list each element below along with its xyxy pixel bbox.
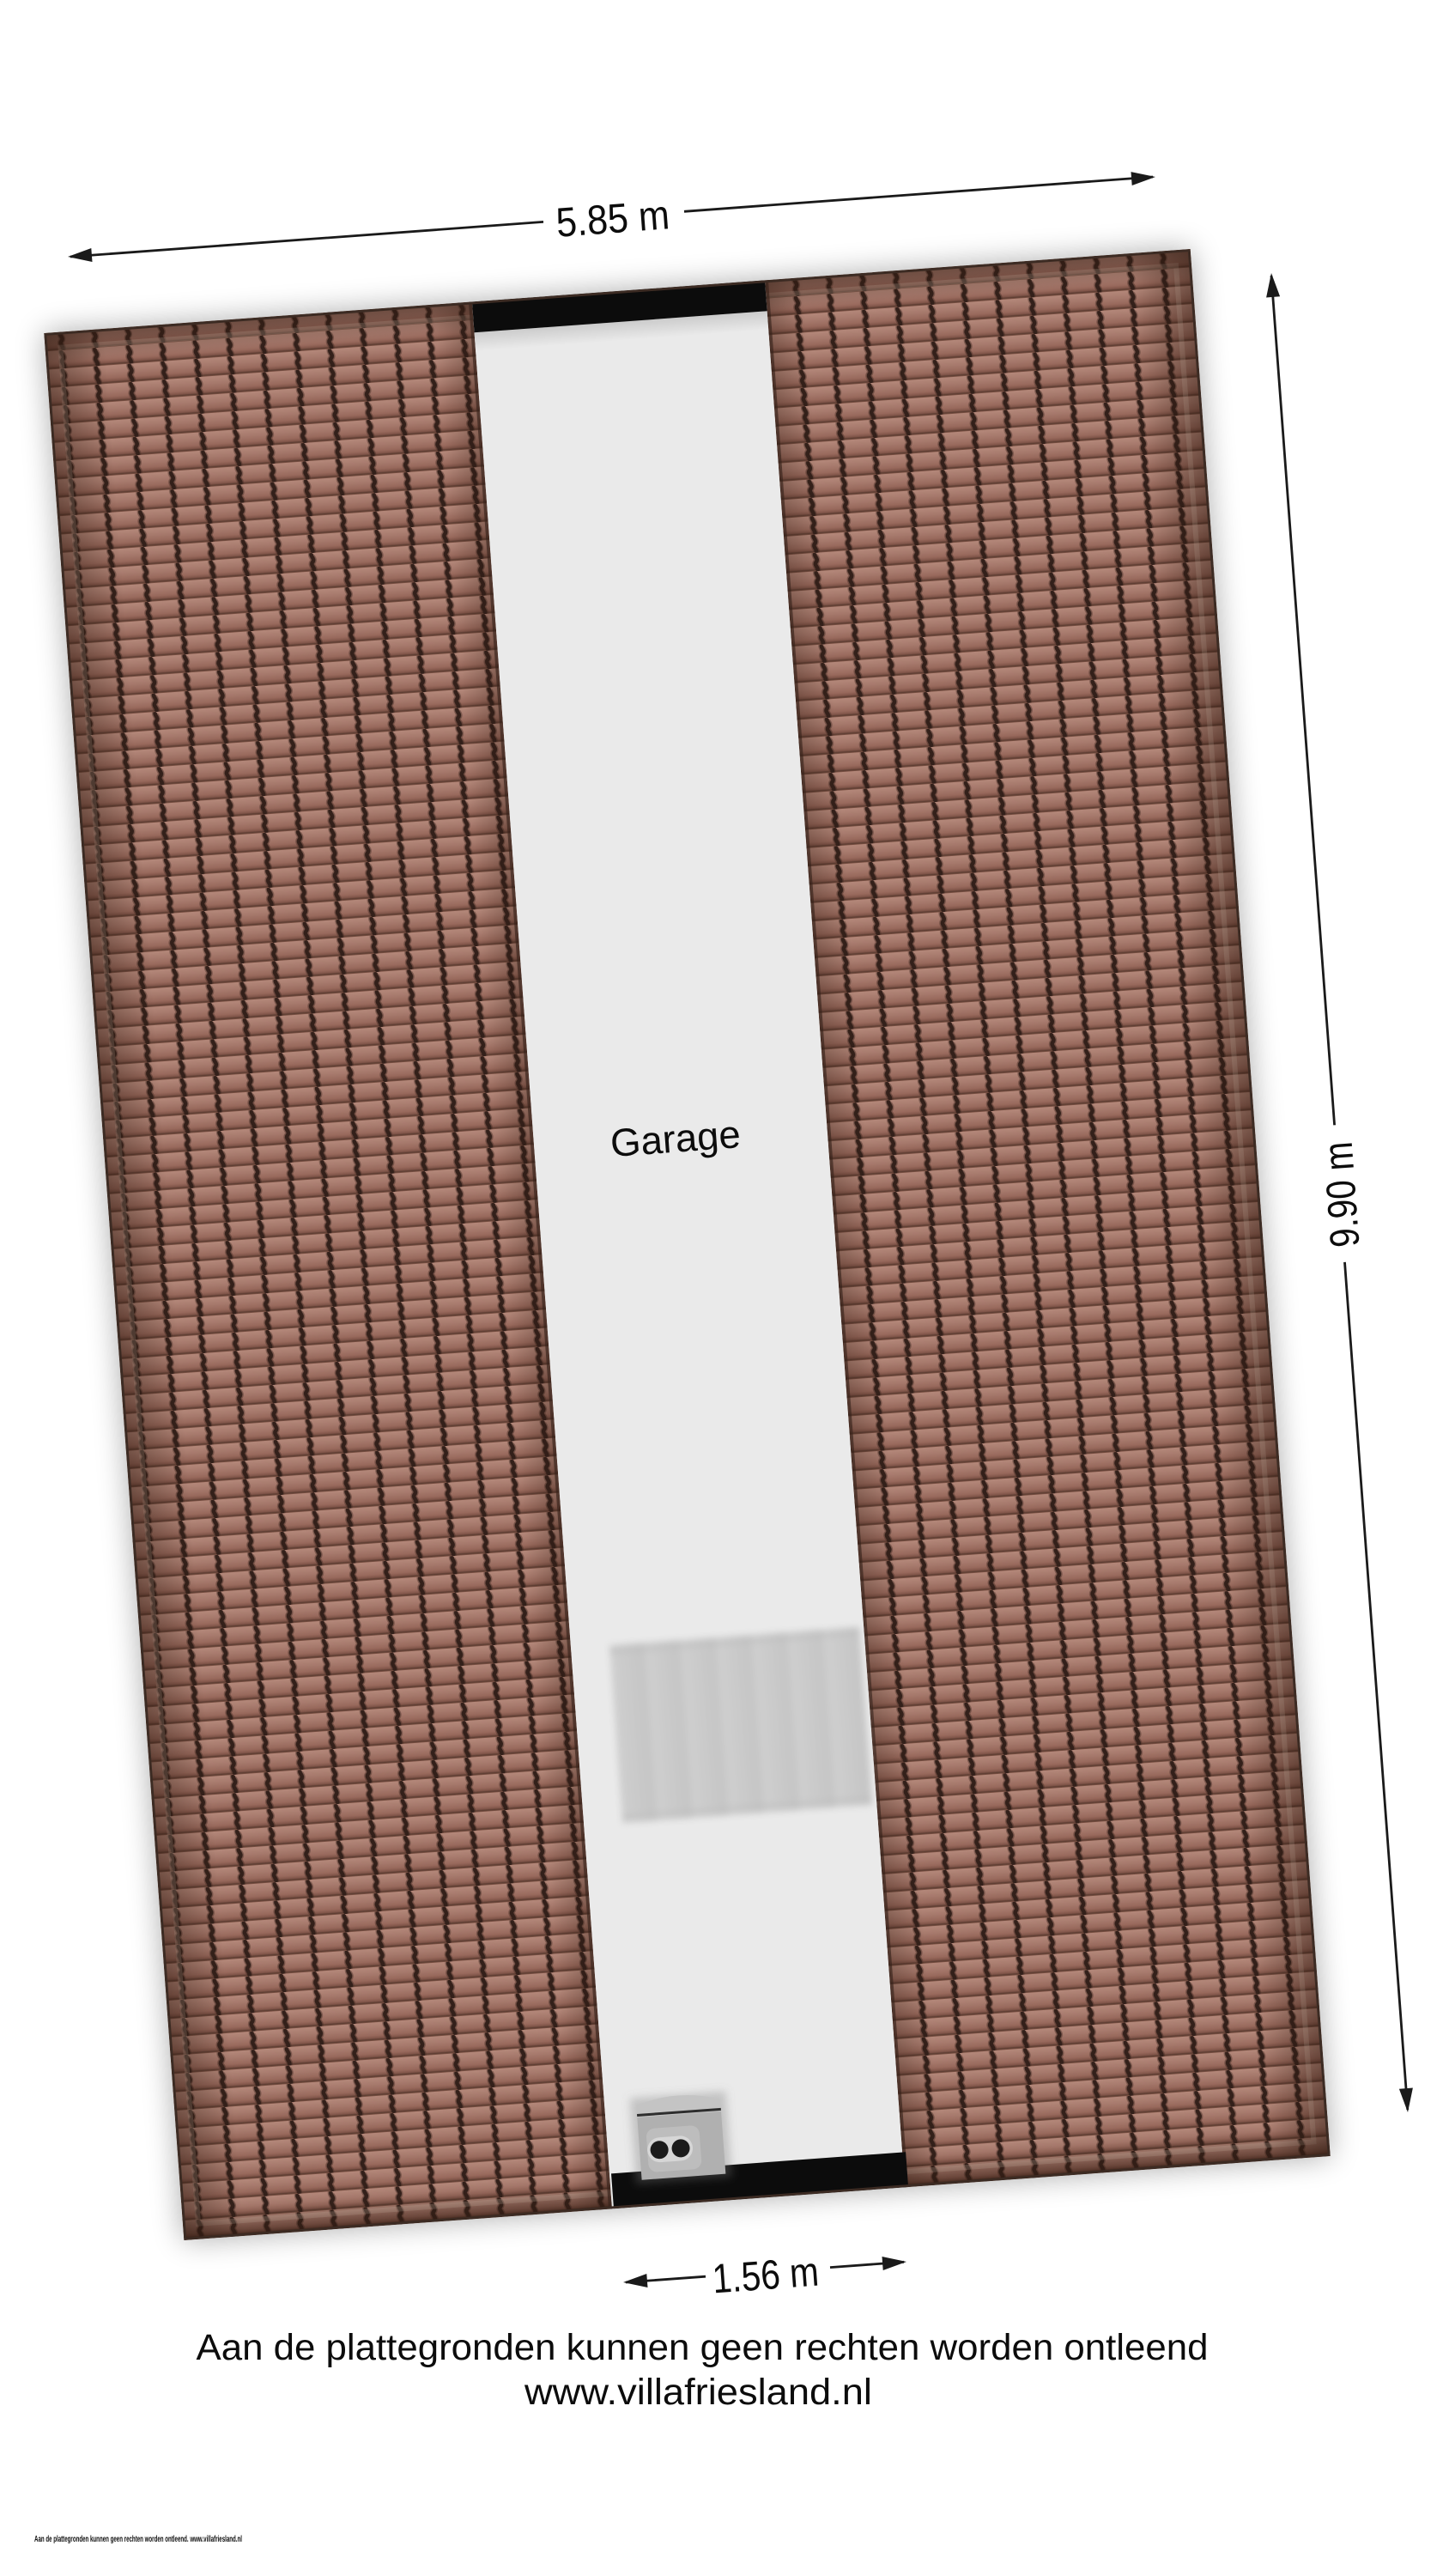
svg-text:Aan de plattegronden kunnen ge: Aan de plattegronden kunnen geen rechten… — [197, 2327, 1209, 2368]
svg-text:Aan de plattegronden kunnen ge: Aan de plattegronden kunnen geen rechten… — [34, 2535, 242, 2544]
svg-text:5.85 m: 5.85 m — [555, 192, 671, 246]
svg-text:9.90 m: 9.90 m — [1316, 1140, 1369, 1249]
svg-text:1.56 m: 1.56 m — [711, 2250, 821, 2303]
svg-text:www.villafriesland.nl: www.villafriesland.nl — [524, 2372, 872, 2413]
